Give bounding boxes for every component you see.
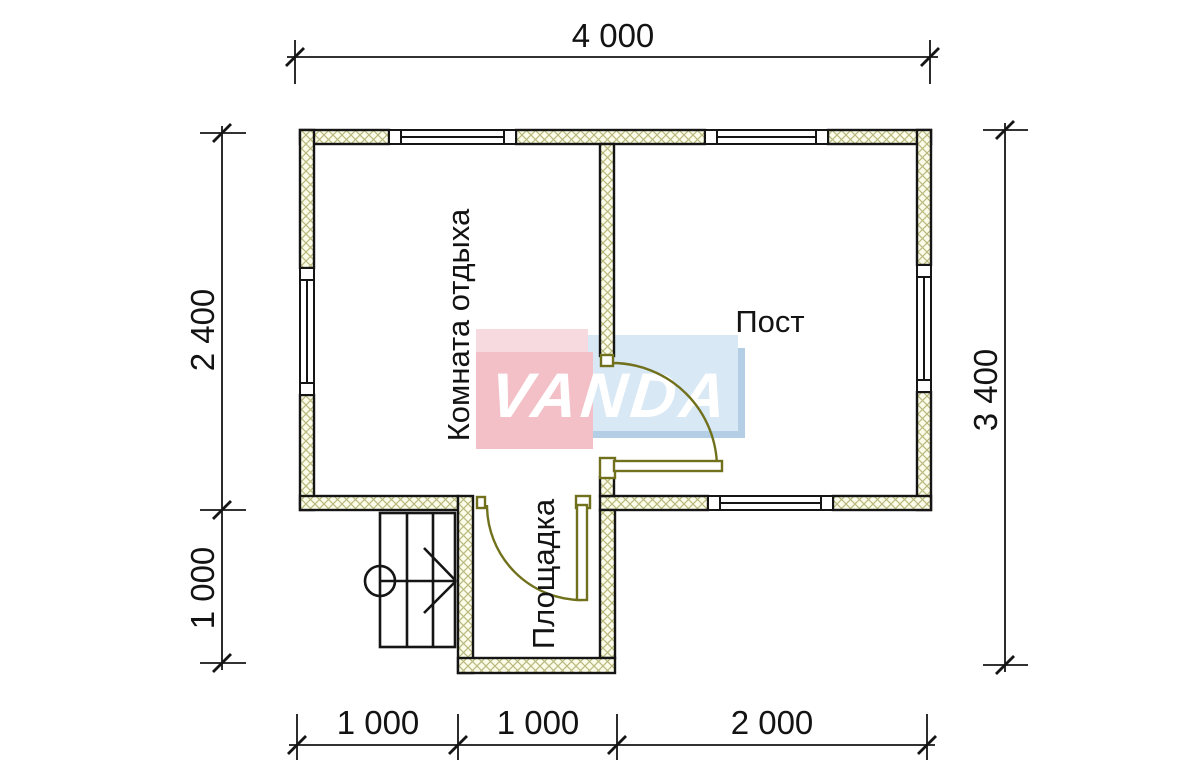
dim-label-top: 4 000 <box>572 17 655 54</box>
wall-top-2 <box>516 130 705 144</box>
wall-right-1 <box>917 130 931 265</box>
room-labels: Комната отдыха Пост Площадка <box>441 208 805 649</box>
door-swing-arc <box>612 363 717 468</box>
interior-door <box>600 355 722 478</box>
stairs <box>365 513 456 647</box>
room-label-rest-room: Комната отдыха <box>441 208 476 441</box>
wall-interior-stub <box>600 477 614 496</box>
door-frame-block <box>601 355 613 366</box>
dim-label-bottom-1: 1 000 <box>337 704 420 741</box>
floor-plan-svg: 4 000 1 000 1 000 2 000 2 400 1 000 3 40… <box>0 0 1200 772</box>
window-right <box>917 265 931 392</box>
wall-left-1 <box>300 130 314 268</box>
wall-left-2 <box>300 395 314 510</box>
dim-label-left-1: 2 400 <box>184 289 221 372</box>
window-left <box>300 268 314 395</box>
wall-bottom-2 <box>600 496 708 510</box>
window-bottom-right <box>708 496 833 510</box>
dim-label-right: 3 400 <box>967 349 1004 432</box>
wall-bottom-1 <box>300 496 458 510</box>
room-label-post-room: Пост <box>735 304 804 339</box>
wall-landing-left <box>458 496 473 673</box>
door-leaf <box>614 461 722 471</box>
dim-label-left-2: 1 000 <box>184 547 221 630</box>
wall-top-3 <box>828 130 931 144</box>
wall-interior <box>600 144 614 356</box>
dim-label-bottom-3: 2 000 <box>731 704 814 741</box>
room-label-landing: Площадка <box>526 498 561 649</box>
dim-label-bottom-2: 1 000 <box>497 704 580 741</box>
wall-landing-bottom <box>458 658 615 673</box>
door-hinge-block <box>600 458 615 478</box>
door-leaf <box>577 505 587 600</box>
windows <box>300 130 931 510</box>
wall-landing-right <box>600 510 615 658</box>
window-top-left <box>389 130 516 144</box>
window-top-right <box>705 130 828 144</box>
wall-right-2 <box>917 392 931 510</box>
door-frame-block <box>477 497 485 508</box>
wall-bottom-3 <box>833 496 931 510</box>
floor-plan-canvas: VANDA <box>0 0 1200 772</box>
